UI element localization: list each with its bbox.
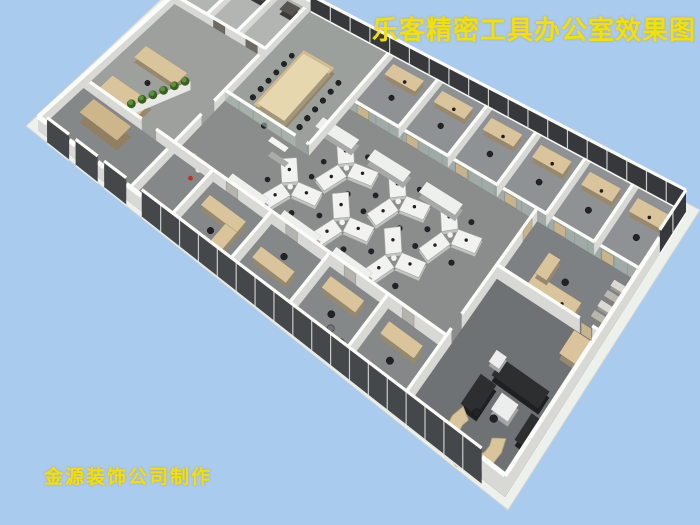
office-chair [297,124,303,130]
office-chair [392,283,398,289]
plant-leaf [182,77,187,82]
floorplan-rendering [0,0,700,525]
office-chair [633,234,640,241]
y-desk-hub [447,232,453,238]
office-chair [265,177,271,183]
monitor [391,238,394,241]
office-chair [145,80,150,85]
plant-leaf [171,82,176,87]
office-chair [412,243,418,249]
office-chair [368,248,374,254]
office-chair [304,115,310,121]
edge [306,142,309,144]
office-chair [438,123,444,129]
monitor [501,135,505,139]
monitor [330,175,333,178]
office-chair [389,95,395,101]
office-chair [274,70,279,75]
plant-leaf [149,91,154,96]
office-chair [448,260,454,266]
office-chair [424,226,430,232]
monitor [403,80,407,84]
y-desk-hub [339,220,345,226]
plant-leaf [128,100,133,105]
office-chair [289,53,294,58]
office-chair [328,311,335,318]
monitor [433,243,436,246]
office-chair [312,107,318,113]
office-chair [317,213,323,219]
office-chair [281,253,288,260]
monitor [648,216,652,220]
office-chair [562,279,569,286]
monitor [452,108,456,112]
monitor [288,168,291,171]
office-chair [468,219,474,225]
office-chair [207,227,214,234]
monitor [339,203,342,206]
office-chair [281,61,286,66]
monitor [550,162,554,166]
credit-text: 金源装饰公司制作 [44,462,212,489]
monitor [357,227,360,230]
monitor [408,262,411,265]
monitor [413,205,416,208]
monitor [273,193,276,196]
office-chair [473,409,481,417]
monitor [305,191,308,194]
office-chair [373,193,379,199]
office-chair [386,357,393,364]
monitor [361,172,364,175]
monitor [381,209,384,212]
plant-leaf [160,86,165,91]
office-chair [490,415,498,423]
office-chair [250,95,256,101]
office-chair [536,179,542,185]
title-text: 乐客精密工具办公室效果图 [372,10,696,47]
page-background: 乐客精密工具办公室效果图 金源装饰公司制作 [0,0,700,525]
office-chair [309,174,315,180]
office-chair [585,207,591,213]
office-chair [336,80,341,85]
red-object [188,176,193,181]
monitor [465,238,468,241]
y-desk-hub [344,165,350,171]
plant-leaf [139,95,144,100]
y-desk-hub [391,255,397,261]
y-desk-hub [287,184,293,190]
office-chair [361,208,367,214]
office-chair [266,78,271,83]
y-desk-hub [395,199,401,205]
office-chair [321,159,327,165]
monitor [600,189,604,193]
office-chair [258,86,264,92]
office-chair [320,98,326,104]
office-chair [487,151,493,157]
monitor [325,230,328,233]
monitor [377,266,380,269]
office-chair [328,89,334,95]
